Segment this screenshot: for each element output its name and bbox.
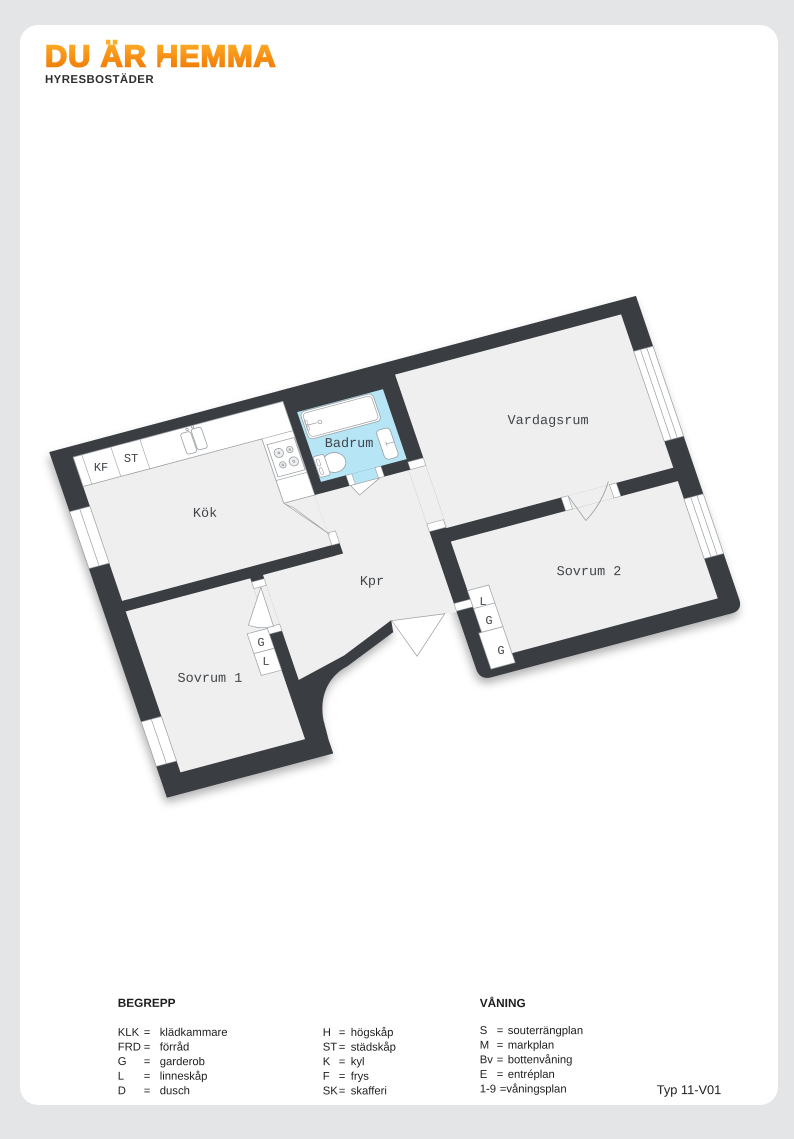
svg-text:klädkammare: klädkammare: [160, 1027, 228, 1039]
svg-text:E: E: [480, 1069, 488, 1081]
svg-text:linneskåp: linneskåp: [160, 1070, 208, 1083]
svg-text:=: =: [497, 1040, 504, 1052]
svg-text:garderob: garderob: [160, 1056, 205, 1068]
svg-text:=: =: [339, 1027, 346, 1039]
svg-text:VÅNING: VÅNING: [480, 996, 526, 1010]
svg-text:Vardagsrum: Vardagsrum: [508, 414, 589, 429]
svg-text:L: L: [479, 595, 486, 609]
svg-text:souterrängplan: souterrängplan: [508, 1025, 583, 1037]
svg-text:M: M: [480, 1040, 489, 1052]
svg-text:=våningsplan: =våningsplan: [500, 1082, 567, 1095]
svg-text:Kök: Kök: [193, 507, 217, 522]
svg-text:=: =: [339, 1071, 346, 1083]
svg-text:G: G: [257, 636, 264, 650]
svg-text:=: =: [339, 1085, 346, 1097]
svg-text:G: G: [497, 644, 504, 658]
svg-text:S: S: [480, 1025, 488, 1037]
svg-text:BEGREPP: BEGREPP: [118, 996, 176, 1010]
svg-text:SK: SK: [323, 1085, 339, 1097]
svg-text:G: G: [485, 614, 492, 628]
svg-text:=: =: [497, 1054, 504, 1066]
svg-text:=: =: [339, 1042, 346, 1054]
svg-text:FRD: FRD: [118, 1041, 141, 1053]
svg-text:städskåp: städskåp: [351, 1041, 396, 1054]
svg-text:dusch: dusch: [160, 1085, 190, 1097]
svg-text:skafferi: skafferi: [351, 1085, 387, 1097]
svg-text:Badrum: Badrum: [325, 437, 374, 452]
svg-text:HYRESBOSTÄDER: HYRESBOSTÄDER: [45, 73, 154, 86]
svg-text:=: =: [144, 1085, 151, 1097]
svg-text:KLK: KLK: [118, 1027, 140, 1039]
svg-text:K: K: [323, 1056, 331, 1068]
svg-text:D: D: [118, 1085, 126, 1097]
svg-text:Typ 11-V01: Typ 11-V01: [657, 1082, 722, 1097]
svg-text:=: =: [144, 1056, 151, 1068]
svg-text:ST: ST: [124, 452, 138, 466]
svg-text:Sovrum 2: Sovrum 2: [557, 565, 622, 580]
svg-text:DU ÄR HEMMA: DU ÄR HEMMA: [45, 40, 277, 74]
svg-text:=: =: [497, 1069, 504, 1081]
svg-text:=: =: [339, 1056, 346, 1068]
svg-text:markplan: markplan: [508, 1040, 554, 1052]
svg-text:entréplan: entréplan: [508, 1069, 555, 1081]
svg-text:L: L: [262, 655, 269, 669]
svg-text:G: G: [118, 1056, 127, 1068]
svg-text:H: H: [323, 1027, 331, 1039]
svg-text:=: =: [144, 1071, 151, 1083]
svg-text:F: F: [323, 1071, 330, 1083]
svg-text:=: =: [144, 1027, 151, 1039]
svg-text:L: L: [118, 1071, 124, 1083]
svg-text:Sovrum 1: Sovrum 1: [178, 672, 243, 687]
svg-text:kyl: kyl: [351, 1056, 365, 1068]
svg-text:frys: frys: [351, 1071, 370, 1083]
svg-text:=: =: [144, 1041, 151, 1053]
svg-text:förråd: förråd: [160, 1040, 190, 1053]
svg-text:=: =: [497, 1025, 504, 1037]
svg-text:Kpr: Kpr: [360, 575, 384, 590]
svg-text:högskåp: högskåp: [351, 1026, 394, 1039]
svg-text:1-9: 1-9: [480, 1083, 496, 1095]
svg-text:bottenvåning: bottenvåning: [508, 1053, 573, 1066]
svg-text:KF: KF: [94, 461, 108, 475]
svg-text:ST: ST: [323, 1042, 338, 1054]
svg-text:Bv: Bv: [480, 1054, 494, 1066]
